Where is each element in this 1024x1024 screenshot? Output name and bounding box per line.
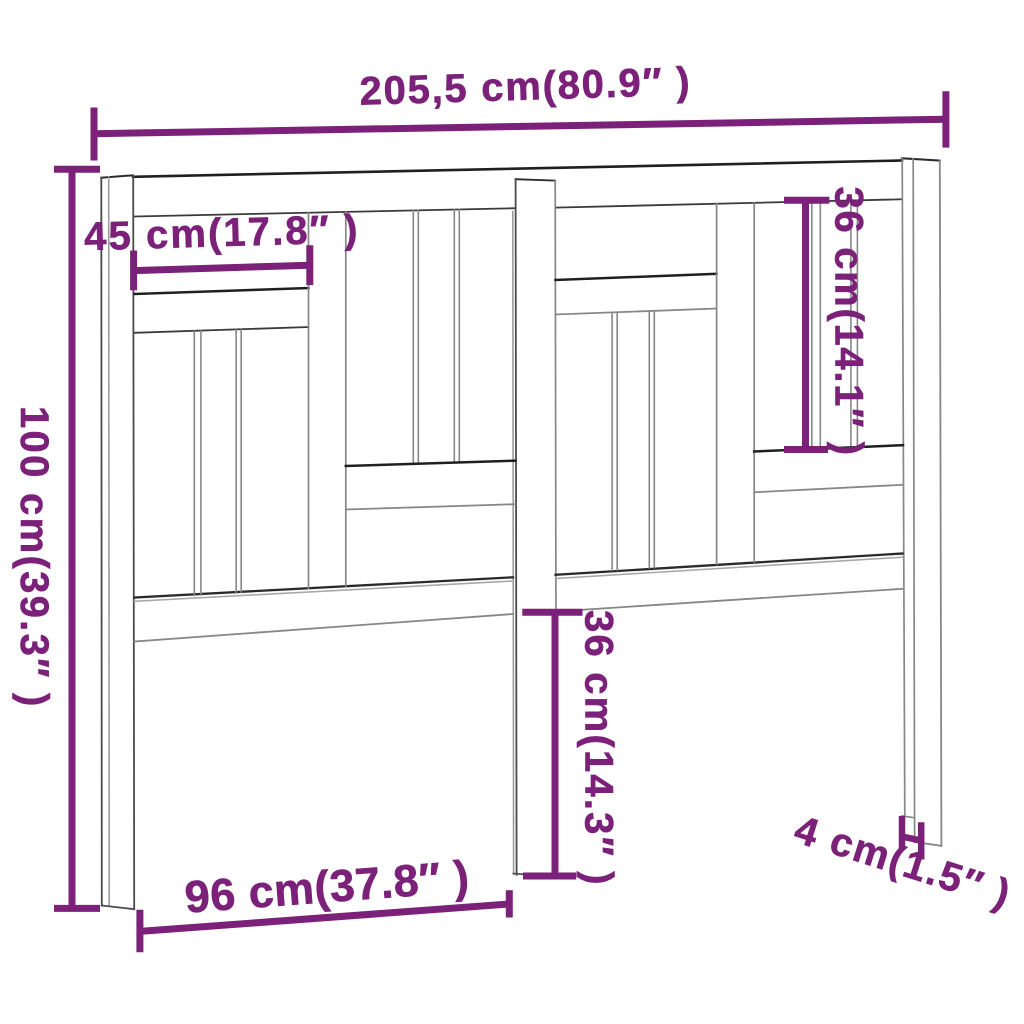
- svg-text:36 cm(14.3″ ): 36 cm(14.3″ ): [577, 610, 621, 887]
- svg-text:205,5 cm(80.9″ ): 205,5 cm(80.9″ ): [359, 60, 692, 114]
- svg-text:36 cm(14.1″ ): 36 cm(14.1″ ): [827, 187, 871, 457]
- svg-text:45 cm(17.8″ ): 45 cm(17.8″ ): [83, 207, 360, 259]
- svg-text:100 cm(39.3″ ): 100 cm(39.3″ ): [12, 406, 56, 709]
